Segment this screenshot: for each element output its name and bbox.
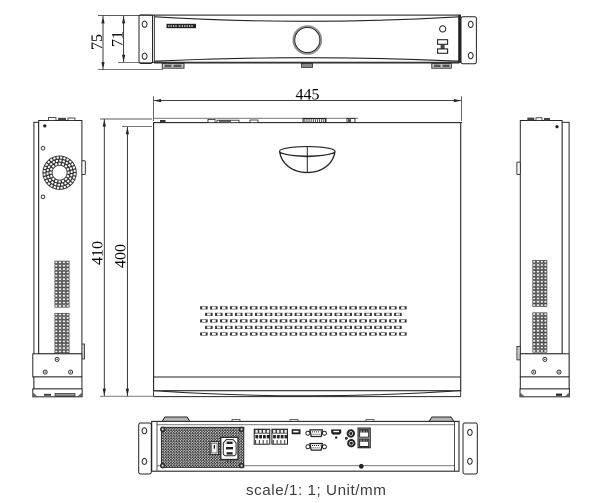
svg-text:400: 400 xyxy=(113,244,130,268)
svg-text:scale/1: 1; Unit/mm: scale/1: 1; Unit/mm xyxy=(246,482,386,499)
svg-text:75: 75 xyxy=(89,34,106,50)
svg-text:445: 445 xyxy=(296,86,320,103)
svg-text:410: 410 xyxy=(90,241,107,265)
svg-text:71: 71 xyxy=(109,31,126,47)
